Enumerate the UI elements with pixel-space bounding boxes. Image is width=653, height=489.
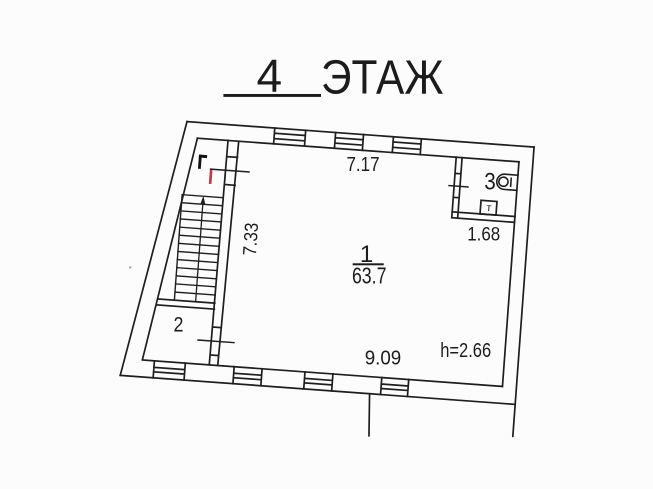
svg-text:h=2.66: h=2.66 — [440, 340, 491, 362]
svg-text:7.17: 7.17 — [347, 154, 380, 176]
svg-text:63.7: 63.7 — [352, 263, 387, 289]
svg-text:4: 4 — [257, 50, 283, 102]
svg-text:т: т — [486, 202, 492, 214]
svg-text:2: 2 — [174, 313, 184, 336]
svg-text:3: 3 — [484, 169, 496, 196]
svg-text:1.68: 1.68 — [467, 225, 500, 246]
svg-text:9.09: 9.09 — [365, 348, 402, 370]
svg-text:7.33: 7.33 — [240, 222, 263, 256]
svg-text:ЭТАЖ: ЭТАЖ — [321, 52, 444, 105]
